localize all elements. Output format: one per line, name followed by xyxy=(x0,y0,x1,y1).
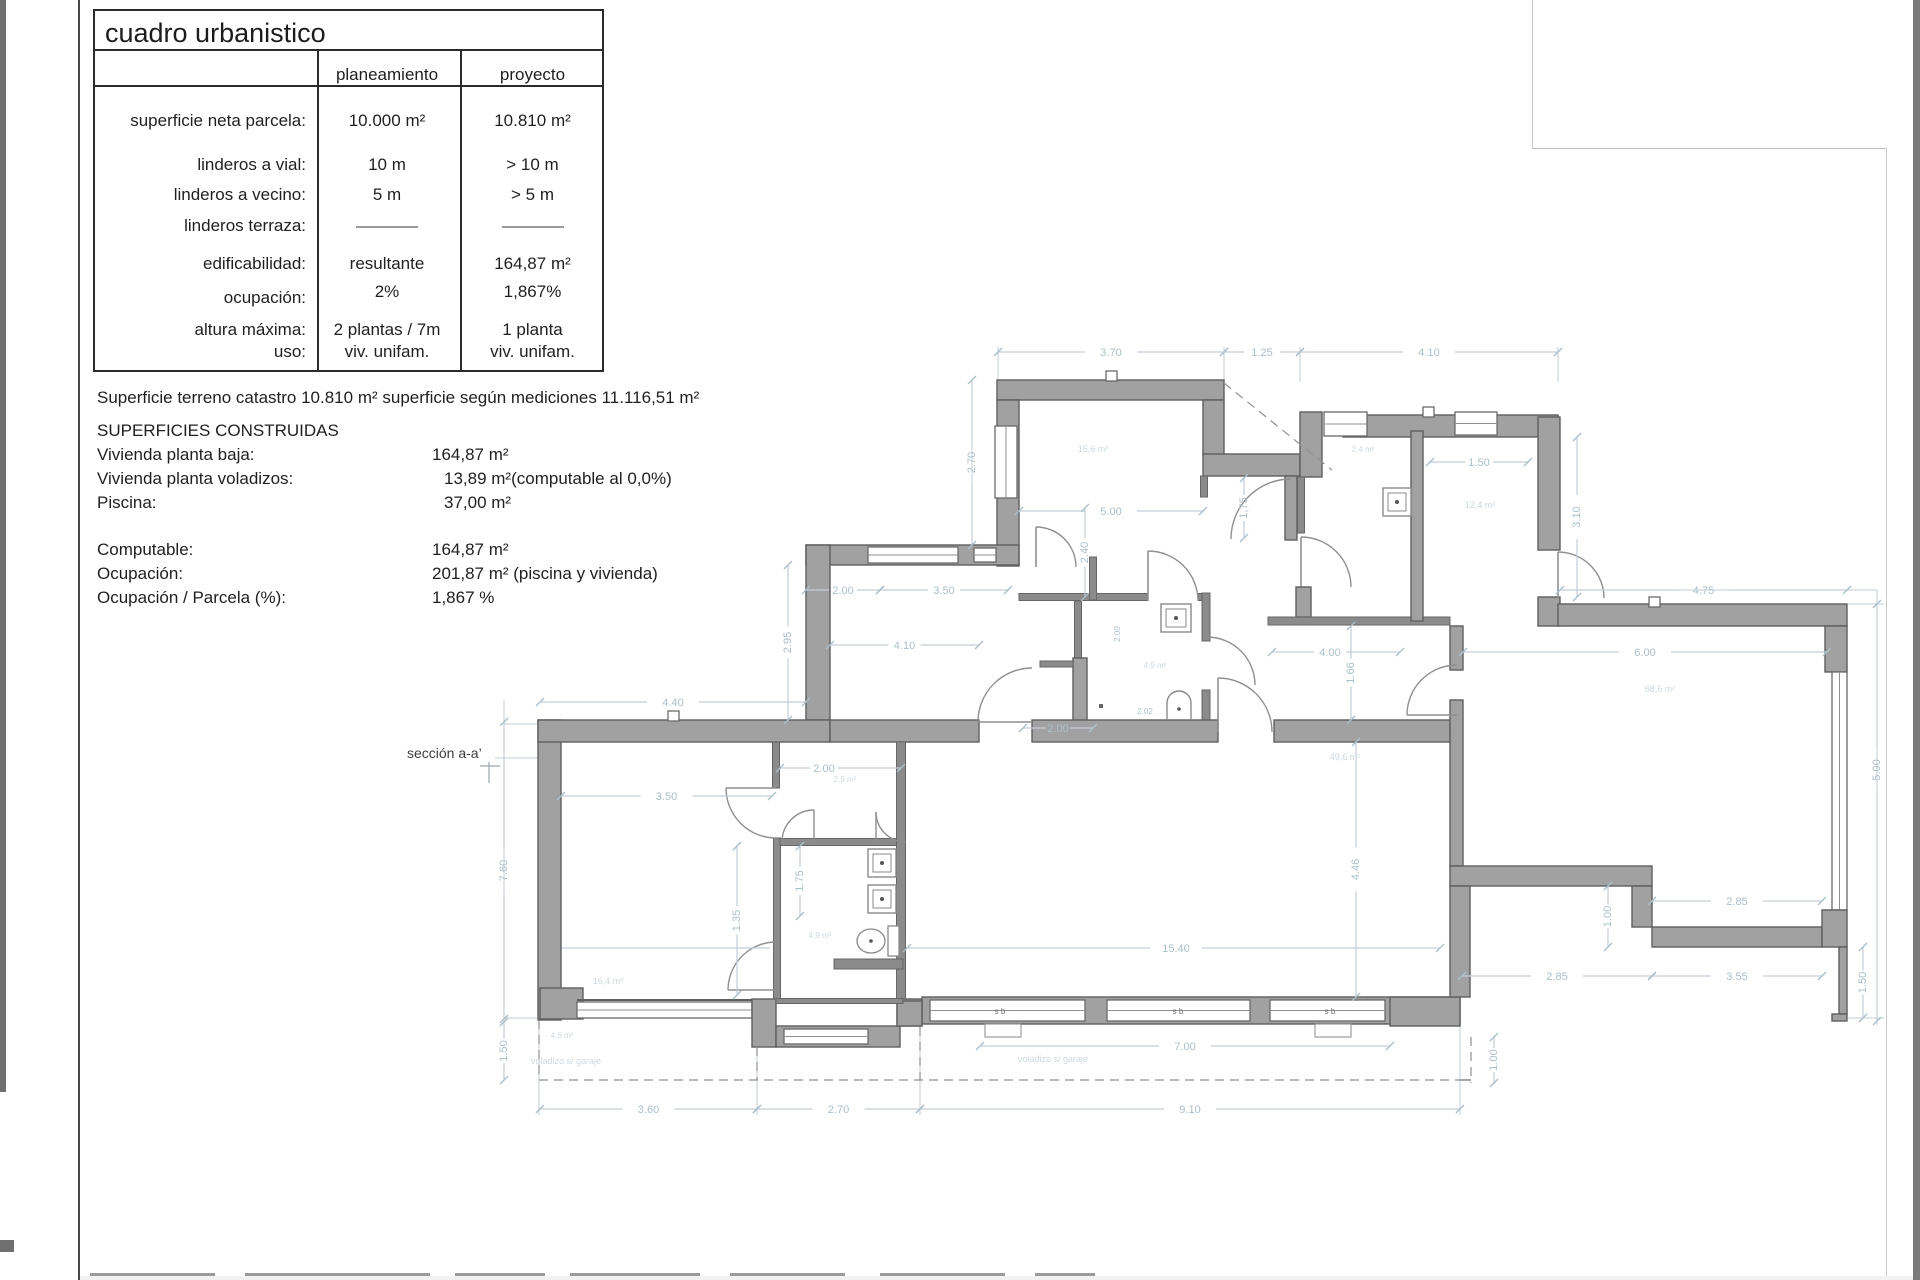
svg-text:49,6 m²: 49,6 m² xyxy=(1330,752,1361,762)
svg-text:2.40: 2.40 xyxy=(1079,542,1091,563)
svg-text:3.10: 3.10 xyxy=(1571,506,1583,527)
svg-text:2.70: 2.70 xyxy=(966,452,978,473)
svg-text:1.25: 1.25 xyxy=(1251,347,1272,359)
svg-text:15.40: 15.40 xyxy=(1162,943,1190,955)
svg-text:1.35: 1.35 xyxy=(731,910,743,931)
svg-text:4.00: 4.00 xyxy=(1319,647,1340,659)
svg-text:12,4 m²: 12,4 m² xyxy=(1465,500,1496,510)
svg-text:7.60: 7.60 xyxy=(498,860,510,881)
svg-text:1,75: 1,75 xyxy=(1238,497,1250,518)
svg-text:2.85: 2.85 xyxy=(1726,896,1747,908)
svg-text:1.00: 1.00 xyxy=(1488,1049,1500,1070)
svg-text:3.55: 3.55 xyxy=(1726,971,1747,983)
svg-text:5.00: 5.00 xyxy=(1100,506,1121,518)
svg-text:1.50: 1.50 xyxy=(1468,457,1489,469)
svg-text:2.95: 2.95 xyxy=(782,632,794,653)
svg-text:2.85: 2.85 xyxy=(1546,971,1567,983)
svg-text:2,4 m²: 2,4 m² xyxy=(1352,445,1375,454)
svg-text:1.50: 1.50 xyxy=(1857,972,1869,993)
svg-text:3.50: 3.50 xyxy=(656,791,677,803)
svg-text:1.00: 1.00 xyxy=(1602,906,1614,927)
svg-text:5.00: 5.00 xyxy=(1871,759,1883,780)
svg-text:2.02: 2.02 xyxy=(1137,707,1153,716)
svg-text:16,4 m²: 16,4 m² xyxy=(593,976,624,986)
svg-text:voladizo s/ garaje: voladizo s/ garaje xyxy=(531,1056,601,1066)
svg-text:2.00: 2.00 xyxy=(832,585,853,597)
svg-text:4.75: 4.75 xyxy=(1693,585,1714,597)
svg-text:3.70: 3.70 xyxy=(1100,347,1121,359)
svg-text:4.10: 4.10 xyxy=(1418,347,1439,359)
svg-text:4,9 m²: 4,9 m² xyxy=(809,931,832,940)
svg-text:6.00: 6.00 xyxy=(1634,647,1655,659)
svg-text:68,6 m²: 68,6 m² xyxy=(1645,684,1676,694)
svg-text:15,6 m²: 15,6 m² xyxy=(1078,444,1109,454)
svg-text:2.70: 2.70 xyxy=(828,1104,849,1116)
svg-text:1.66: 1.66 xyxy=(1345,662,1357,683)
svg-text:s b: s b xyxy=(1173,1007,1184,1016)
svg-text:3.50: 3.50 xyxy=(933,585,954,597)
svg-text:2,9 m²: 2,9 m² xyxy=(834,775,857,784)
svg-text:voladizo s/ garaje: voladizo s/ garaje xyxy=(1018,1054,1088,1064)
svg-text:4,6 m²: 4,6 m² xyxy=(551,1031,574,1040)
svg-text:2.00: 2.00 xyxy=(1113,626,1122,642)
svg-text:4.10: 4.10 xyxy=(894,640,915,652)
svg-text:9.10: 9.10 xyxy=(1179,1104,1200,1116)
svg-text:4.46: 4.46 xyxy=(1350,859,1362,880)
svg-text:4,9 m²: 4,9 m² xyxy=(1144,661,1167,670)
svg-text:1.50: 1.50 xyxy=(498,1040,510,1061)
svg-text:s b: s b xyxy=(1325,1007,1336,1016)
svg-text:1.75: 1.75 xyxy=(794,870,806,891)
svg-text:3.60: 3.60 xyxy=(638,1104,659,1116)
svg-text:s b: s b xyxy=(995,1007,1006,1016)
svg-text:7.00: 7.00 xyxy=(1174,1041,1195,1053)
svg-text:4.40: 4.40 xyxy=(662,697,683,709)
svg-text:2.00: 2.00 xyxy=(1047,723,1068,735)
svg-text:2.00: 2.00 xyxy=(813,763,834,775)
